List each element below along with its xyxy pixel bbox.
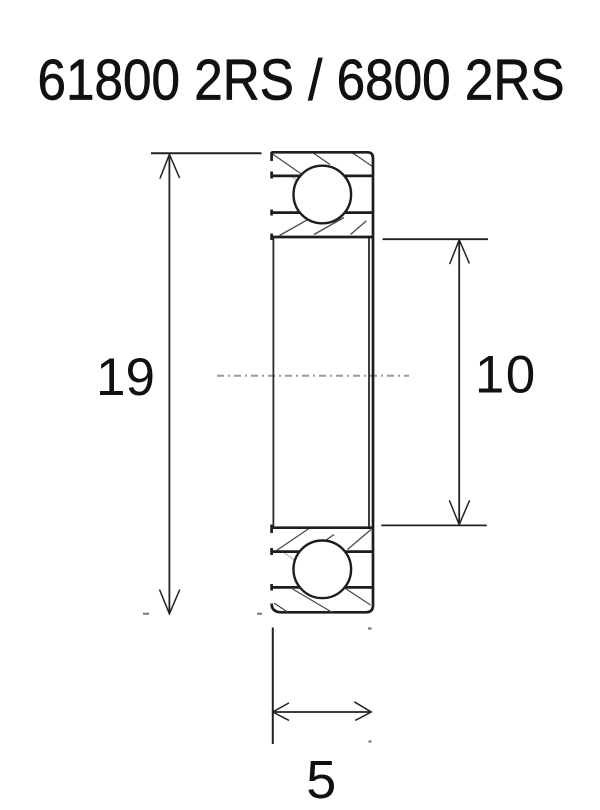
svg-text:19: 19 [96, 348, 155, 407]
svg-text:10: 10 [475, 346, 537, 405]
svg-text:61800 2RS / 6800 2RS: 61800 2RS / 6800 2RS [38, 49, 565, 113]
svg-text:5: 5 [306, 750, 336, 810]
